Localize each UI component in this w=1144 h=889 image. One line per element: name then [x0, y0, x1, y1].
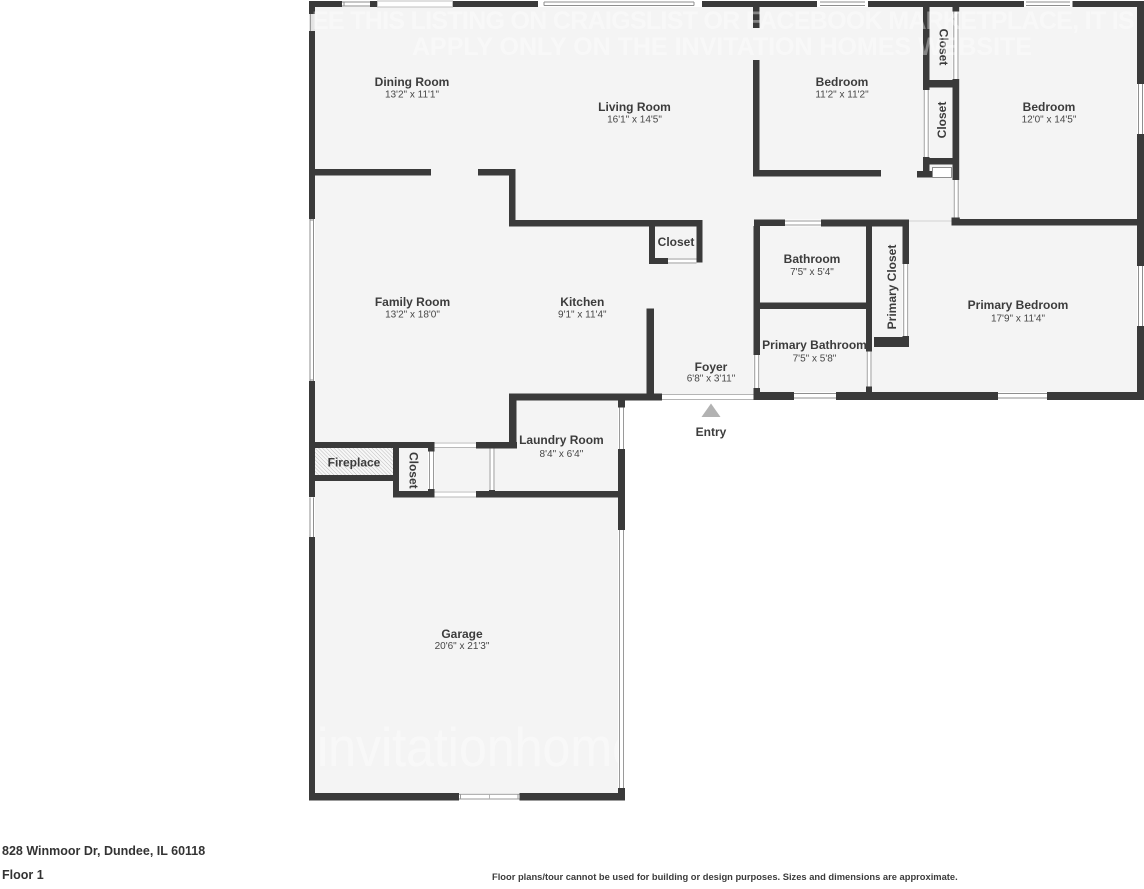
- svg-text:7'5" x 5'8": 7'5" x 5'8": [793, 354, 837, 365]
- svg-text:9'1" x 11'4": 9'1" x 11'4": [558, 310, 607, 321]
- svg-text:Garage: Garage: [441, 627, 483, 641]
- svg-text:Bathroom: Bathroom: [784, 252, 841, 266]
- svg-text:Closet: Closet: [658, 235, 695, 249]
- svg-text:invitationhomes: invitationhomes: [317, 716, 665, 778]
- svg-text:Kitchen: Kitchen: [560, 295, 604, 309]
- svg-text:16'1" x 14'5": 16'1" x 14'5": [607, 115, 662, 126]
- svg-text:Foyer: Foyer: [695, 360, 728, 374]
- svg-text:7'5" x 5'4": 7'5" x 5'4": [790, 267, 834, 278]
- svg-text:Bedroom: Bedroom: [816, 75, 869, 89]
- svg-text:Primary Bedroom: Primary Bedroom: [968, 298, 1069, 312]
- svg-text:Family Room: Family Room: [375, 295, 450, 309]
- svg-text:12'0" x 14'5": 12'0" x 14'5": [1022, 115, 1077, 126]
- svg-text:Fireplace: Fireplace: [328, 456, 381, 470]
- svg-text:13'2" x 18'0": 13'2" x 18'0": [385, 310, 440, 321]
- svg-text:Dining Room: Dining Room: [375, 75, 450, 89]
- svg-text:11'2" x 11'2": 11'2" x 11'2": [815, 90, 869, 101]
- svg-text:20'6" x 21'3": 20'6" x 21'3": [435, 641, 490, 652]
- svg-text:Entry: Entry: [696, 425, 727, 439]
- svg-text:Primary Closet: Primary Closet: [885, 245, 899, 330]
- svg-text:Primary Bathroom: Primary Bathroom: [762, 338, 867, 352]
- svg-text:8'4" x 6'4": 8'4" x 6'4": [540, 449, 584, 460]
- svg-text:Living Room: Living Room: [598, 100, 671, 114]
- svg-text:Closet: Closet: [407, 452, 421, 489]
- svg-text:17'9" x 11'4": 17'9" x 11'4": [991, 314, 1046, 325]
- svg-text:13'2" x 11'1": 13'2" x 11'1": [385, 90, 440, 101]
- svg-text:Bedroom: Bedroom: [1023, 100, 1076, 114]
- svg-text:Laundry Room: Laundry Room: [519, 433, 604, 447]
- svg-text:Closet: Closet: [935, 102, 949, 139]
- svg-text:6'8" x 3'11": 6'8" x 3'11": [687, 374, 736, 385]
